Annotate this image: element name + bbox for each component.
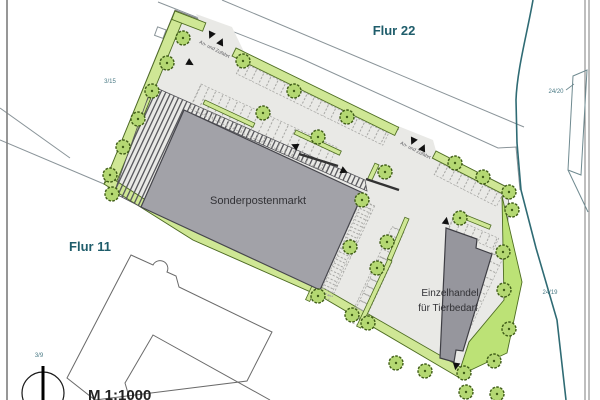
existing-buildings xyxy=(67,255,272,400)
tree-icon xyxy=(103,168,117,182)
tree-icon xyxy=(287,84,301,98)
tree-icon xyxy=(497,283,511,297)
tree-icon xyxy=(378,165,392,179)
tree-icon xyxy=(361,316,375,330)
flur-11-label: Flur 11 xyxy=(69,239,111,254)
tree-icon xyxy=(496,245,510,259)
tree-icon xyxy=(476,170,490,184)
sonderpostenmarkt-label: Sonderpostenmarkt xyxy=(210,195,306,207)
parcel-24-20-label: 24/20 xyxy=(548,89,564,95)
tree-icon xyxy=(236,54,250,68)
parcel-3-9-label: 3/9 xyxy=(35,353,44,359)
boundary-line-east xyxy=(516,0,566,400)
einzelhandel-label-line1: Einzelhandel xyxy=(421,288,478,299)
tree-icon xyxy=(487,354,501,368)
tree-icon xyxy=(380,235,394,249)
tree-icon xyxy=(343,240,357,254)
tree-icon xyxy=(502,185,516,199)
flur-22-label: Flur 22 xyxy=(373,23,416,38)
tree-icon xyxy=(345,308,359,322)
north-compass xyxy=(22,366,64,400)
tree-icon xyxy=(448,156,462,170)
tree-icon xyxy=(389,356,403,370)
west-road-edge xyxy=(0,108,70,158)
cadastral-boundary xyxy=(516,0,588,400)
tree-icon xyxy=(459,385,473,399)
site-plan-map: Flur 22 Flur 11 3/15 24/20 24/19 3/9 Son… xyxy=(0,0,600,400)
tree-icon xyxy=(340,110,354,124)
tree-icon xyxy=(502,322,516,336)
tree-icon xyxy=(131,112,145,126)
parcel-24-20-strip xyxy=(568,70,587,175)
tree-icon xyxy=(176,31,190,45)
tree-icon xyxy=(453,211,467,225)
tree-icon xyxy=(311,289,325,303)
tree-icon xyxy=(145,84,159,98)
tree-icon xyxy=(418,364,432,378)
tree-icon xyxy=(370,261,384,275)
tree-icon xyxy=(505,203,519,217)
south-road-edge xyxy=(0,140,104,184)
einzelhandel-label-line2: für Tierbedarf xyxy=(418,303,478,314)
tree-icon xyxy=(311,130,325,144)
tree-icon xyxy=(490,387,504,400)
tree-icon xyxy=(160,56,174,70)
parcel-3-15-label: 3/15 xyxy=(104,79,116,85)
scale-label: M 1:1000 xyxy=(88,387,151,400)
tree-icon xyxy=(116,140,130,154)
site-plan-page: Flur 22 Flur 11 3/15 24/20 24/19 3/9 Son… xyxy=(0,0,600,400)
tree-icon xyxy=(457,366,471,380)
tree-icon xyxy=(256,106,270,120)
tree-icon xyxy=(355,193,369,207)
parcel-24-19-label: 24/19 xyxy=(542,290,558,296)
tree-icon xyxy=(105,187,119,201)
existing-building-a xyxy=(67,255,272,400)
